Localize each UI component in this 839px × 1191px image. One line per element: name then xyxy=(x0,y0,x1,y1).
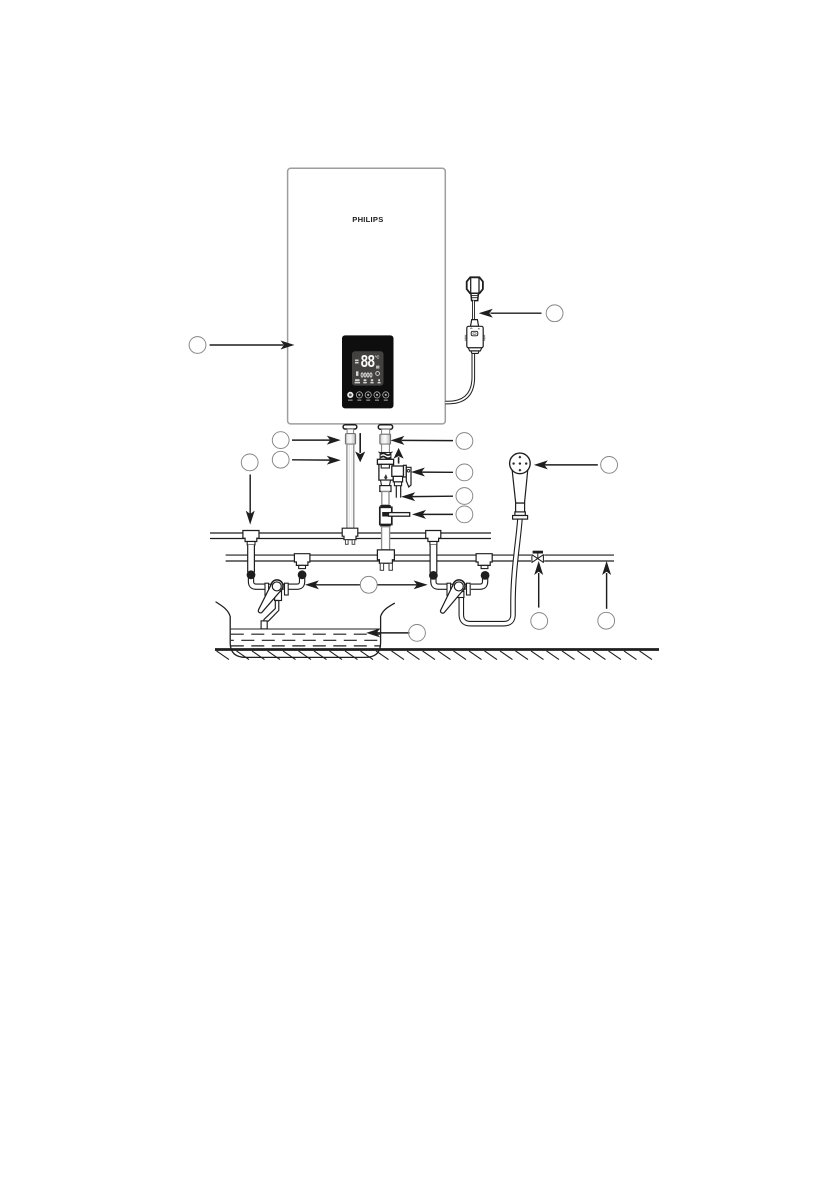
svg-text:°C: °C xyxy=(375,355,380,360)
svg-text:PHILIPS: PHILIPS xyxy=(352,215,383,224)
svg-text:88: 88 xyxy=(361,352,376,371)
svg-text:0000: 0000 xyxy=(360,372,372,380)
